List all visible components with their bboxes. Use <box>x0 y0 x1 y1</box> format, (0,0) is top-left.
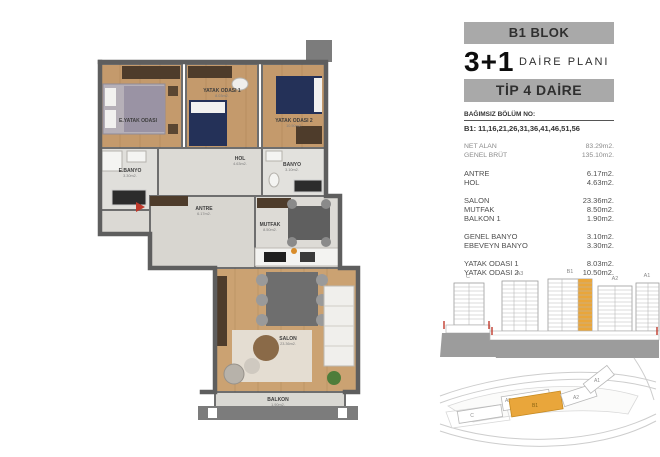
parapet-gap-2 <box>338 408 347 418</box>
area-value: 1.90m2. <box>587 214 614 223</box>
table-row: EBEVEYN BANYO 3.30m2. <box>464 241 614 250</box>
table-row: SALON 23.36m2. <box>464 196 614 205</box>
plan-type-row: 3+1 DAİRE PLANI <box>464 45 614 78</box>
kitchen-sink <box>300 252 315 262</box>
area-value: 135.10m2. <box>582 151 614 160</box>
area-group-bath: GENEL BANYO 3.10m2. EBEVEYN BANYO 3.30m2… <box>464 232 614 250</box>
dining-chair-3 <box>256 314 268 326</box>
plant-icon <box>327 371 341 385</box>
area-ebanyo: 3.30m2. <box>123 174 137 178</box>
area-value: 8.50m2. <box>587 205 614 214</box>
kitchen-table <box>288 206 330 240</box>
plan-type: 3+1 <box>464 46 515 78</box>
area-salon: 23.36m2. <box>280 342 296 346</box>
nightstand <box>168 86 178 96</box>
table-row: NET ALAN 83.29m2. <box>464 142 614 151</box>
area-value: 23.36m2. <box>583 196 614 205</box>
bed2-desk <box>296 126 322 144</box>
tip-title: TİP 4 DAİRE <box>464 79 614 102</box>
nightstand-2 <box>168 124 178 134</box>
area-label: HOL <box>464 178 479 187</box>
area-label: GENEL BRÜT <box>464 151 507 160</box>
kitchen-chair-4 <box>321 237 331 247</box>
dining-chair-4 <box>316 274 328 286</box>
bagimsiz-units: B1: 11,16,21,26,31,36,41,46,51,56 <box>464 124 614 133</box>
table-row: GENEL BRÜT 135.10m2. <box>464 151 614 160</box>
area-value: 83.29m2. <box>586 142 614 151</box>
cooktop <box>264 252 286 262</box>
area-balkon: 1.90m2. <box>271 403 285 407</box>
site-plan: A3 B1 A2 A1 C <box>438 356 660 457</box>
elevation-diagram: C A3 B1 A2 A1 <box>440 253 660 360</box>
area-antre: 6.17m2. <box>197 212 211 216</box>
area-label: SALON <box>464 196 489 205</box>
table-row: ANTRE 6.17m2. <box>464 169 614 178</box>
elevation-label-b1: B1 <box>567 269 574 275</box>
elevation-tower-a3 <box>502 281 538 331</box>
parapet-gap <box>208 408 217 418</box>
side-table <box>244 358 260 374</box>
master-pillow-2 <box>105 110 116 128</box>
area-value: 6.17m2. <box>587 169 614 178</box>
area-banyo: 3.10m2. <box>285 168 299 172</box>
area-group-total: NET ALAN 83.29m2. GENEL BRÜT 135.10m2. <box>464 142 614 160</box>
area-label: NET ALAN <box>464 142 497 151</box>
tv-unit <box>217 276 227 346</box>
area-bed1: 8.03m2. <box>215 94 229 98</box>
dining-chair <box>256 274 268 286</box>
elevation-label-a2: A2 <box>612 276 619 282</box>
tower-c-ground <box>440 333 496 357</box>
room-hall <box>158 148 262 196</box>
area-label: EBEVEYN BANYO <box>464 241 528 250</box>
area-value: 4.63m2. <box>587 178 614 187</box>
master-blanket <box>124 86 165 132</box>
bagimsiz-heading: BAĞIMSIZ BÖLÜM NO: <box>464 111 614 121</box>
table-row: HOL 4.63m2. <box>464 178 614 187</box>
table-row: MUTFAK 8.50m2. <box>464 205 614 214</box>
bed1-wardrobe <box>188 66 232 78</box>
elevation-label-a1: A1 <box>644 273 651 279</box>
fruit-bowl <box>291 248 297 254</box>
table-row: BALKON 1 1.90m2. <box>464 214 614 223</box>
area-hol: 4.63m2. <box>233 162 247 166</box>
area-group-living: SALON 23.36m2. MUTFAK 8.50m2. BALKON 1 1… <box>464 196 614 223</box>
coffee-table <box>253 335 279 361</box>
block-title: B1 BLOK <box>464 22 614 44</box>
elevation-label-a3: A3 <box>517 271 524 277</box>
kitchen-chair-2 <box>321 199 331 209</box>
armchair <box>224 364 244 384</box>
tower-c-platform <box>446 325 490 333</box>
site-label-c: C <box>470 413 474 419</box>
sink <box>127 151 146 162</box>
site-label-a1: A1 <box>594 378 600 384</box>
bathtub <box>112 190 146 205</box>
kitchen-cabinet <box>257 198 291 208</box>
site-label-a2: A2 <box>573 395 579 401</box>
bed2-pillow <box>314 78 322 112</box>
toilet <box>269 173 279 187</box>
info-panel: B1 BLOK 3+1 DAİRE PLANI TİP 4 DAİRE BAĞI… <box>464 22 614 286</box>
kitchen-chair-3 <box>287 237 297 247</box>
master-wardrobe <box>122 66 180 79</box>
bed1-pillow <box>191 102 225 113</box>
balcony-parapet <box>198 406 358 420</box>
platform <box>490 331 659 340</box>
area-label: GENEL BANYO <box>464 232 518 241</box>
shaft-block <box>306 40 332 62</box>
label-master: E.YATAK ODASI <box>119 118 158 124</box>
kitchen-chair <box>287 199 297 209</box>
area-value: 3.10m2. <box>587 232 614 241</box>
elevation-label-c: C <box>466 274 470 280</box>
plan-type-label: DAİRE PLANI <box>515 56 615 68</box>
area-label: MUTFAK <box>464 205 494 214</box>
area-label: ANTRE <box>464 169 489 178</box>
bath-sink <box>266 151 282 161</box>
area-label: BALKON 1 <box>464 214 501 223</box>
area-mutfak: 8.50m2. <box>263 228 277 232</box>
dining-chair-2 <box>256 294 268 306</box>
site-label-b1: B1 <box>532 403 538 409</box>
table-row: GENEL BANYO 3.10m2. <box>464 232 614 241</box>
area-value: 3.30m2. <box>587 241 614 250</box>
area-group-entry: ANTRE 6.17m2. HOL 4.63m2. <box>464 169 614 187</box>
floor-plan: E.YATAK ODASI YATAK ODASI 1 YATAK ODASI … <box>0 0 460 457</box>
master-pillow <box>105 88 116 106</box>
bath-tub-2 <box>294 180 322 192</box>
foyer-cabinet <box>150 196 188 206</box>
area-bed2: 10.50m2. <box>286 124 302 128</box>
dining-table <box>266 272 318 326</box>
